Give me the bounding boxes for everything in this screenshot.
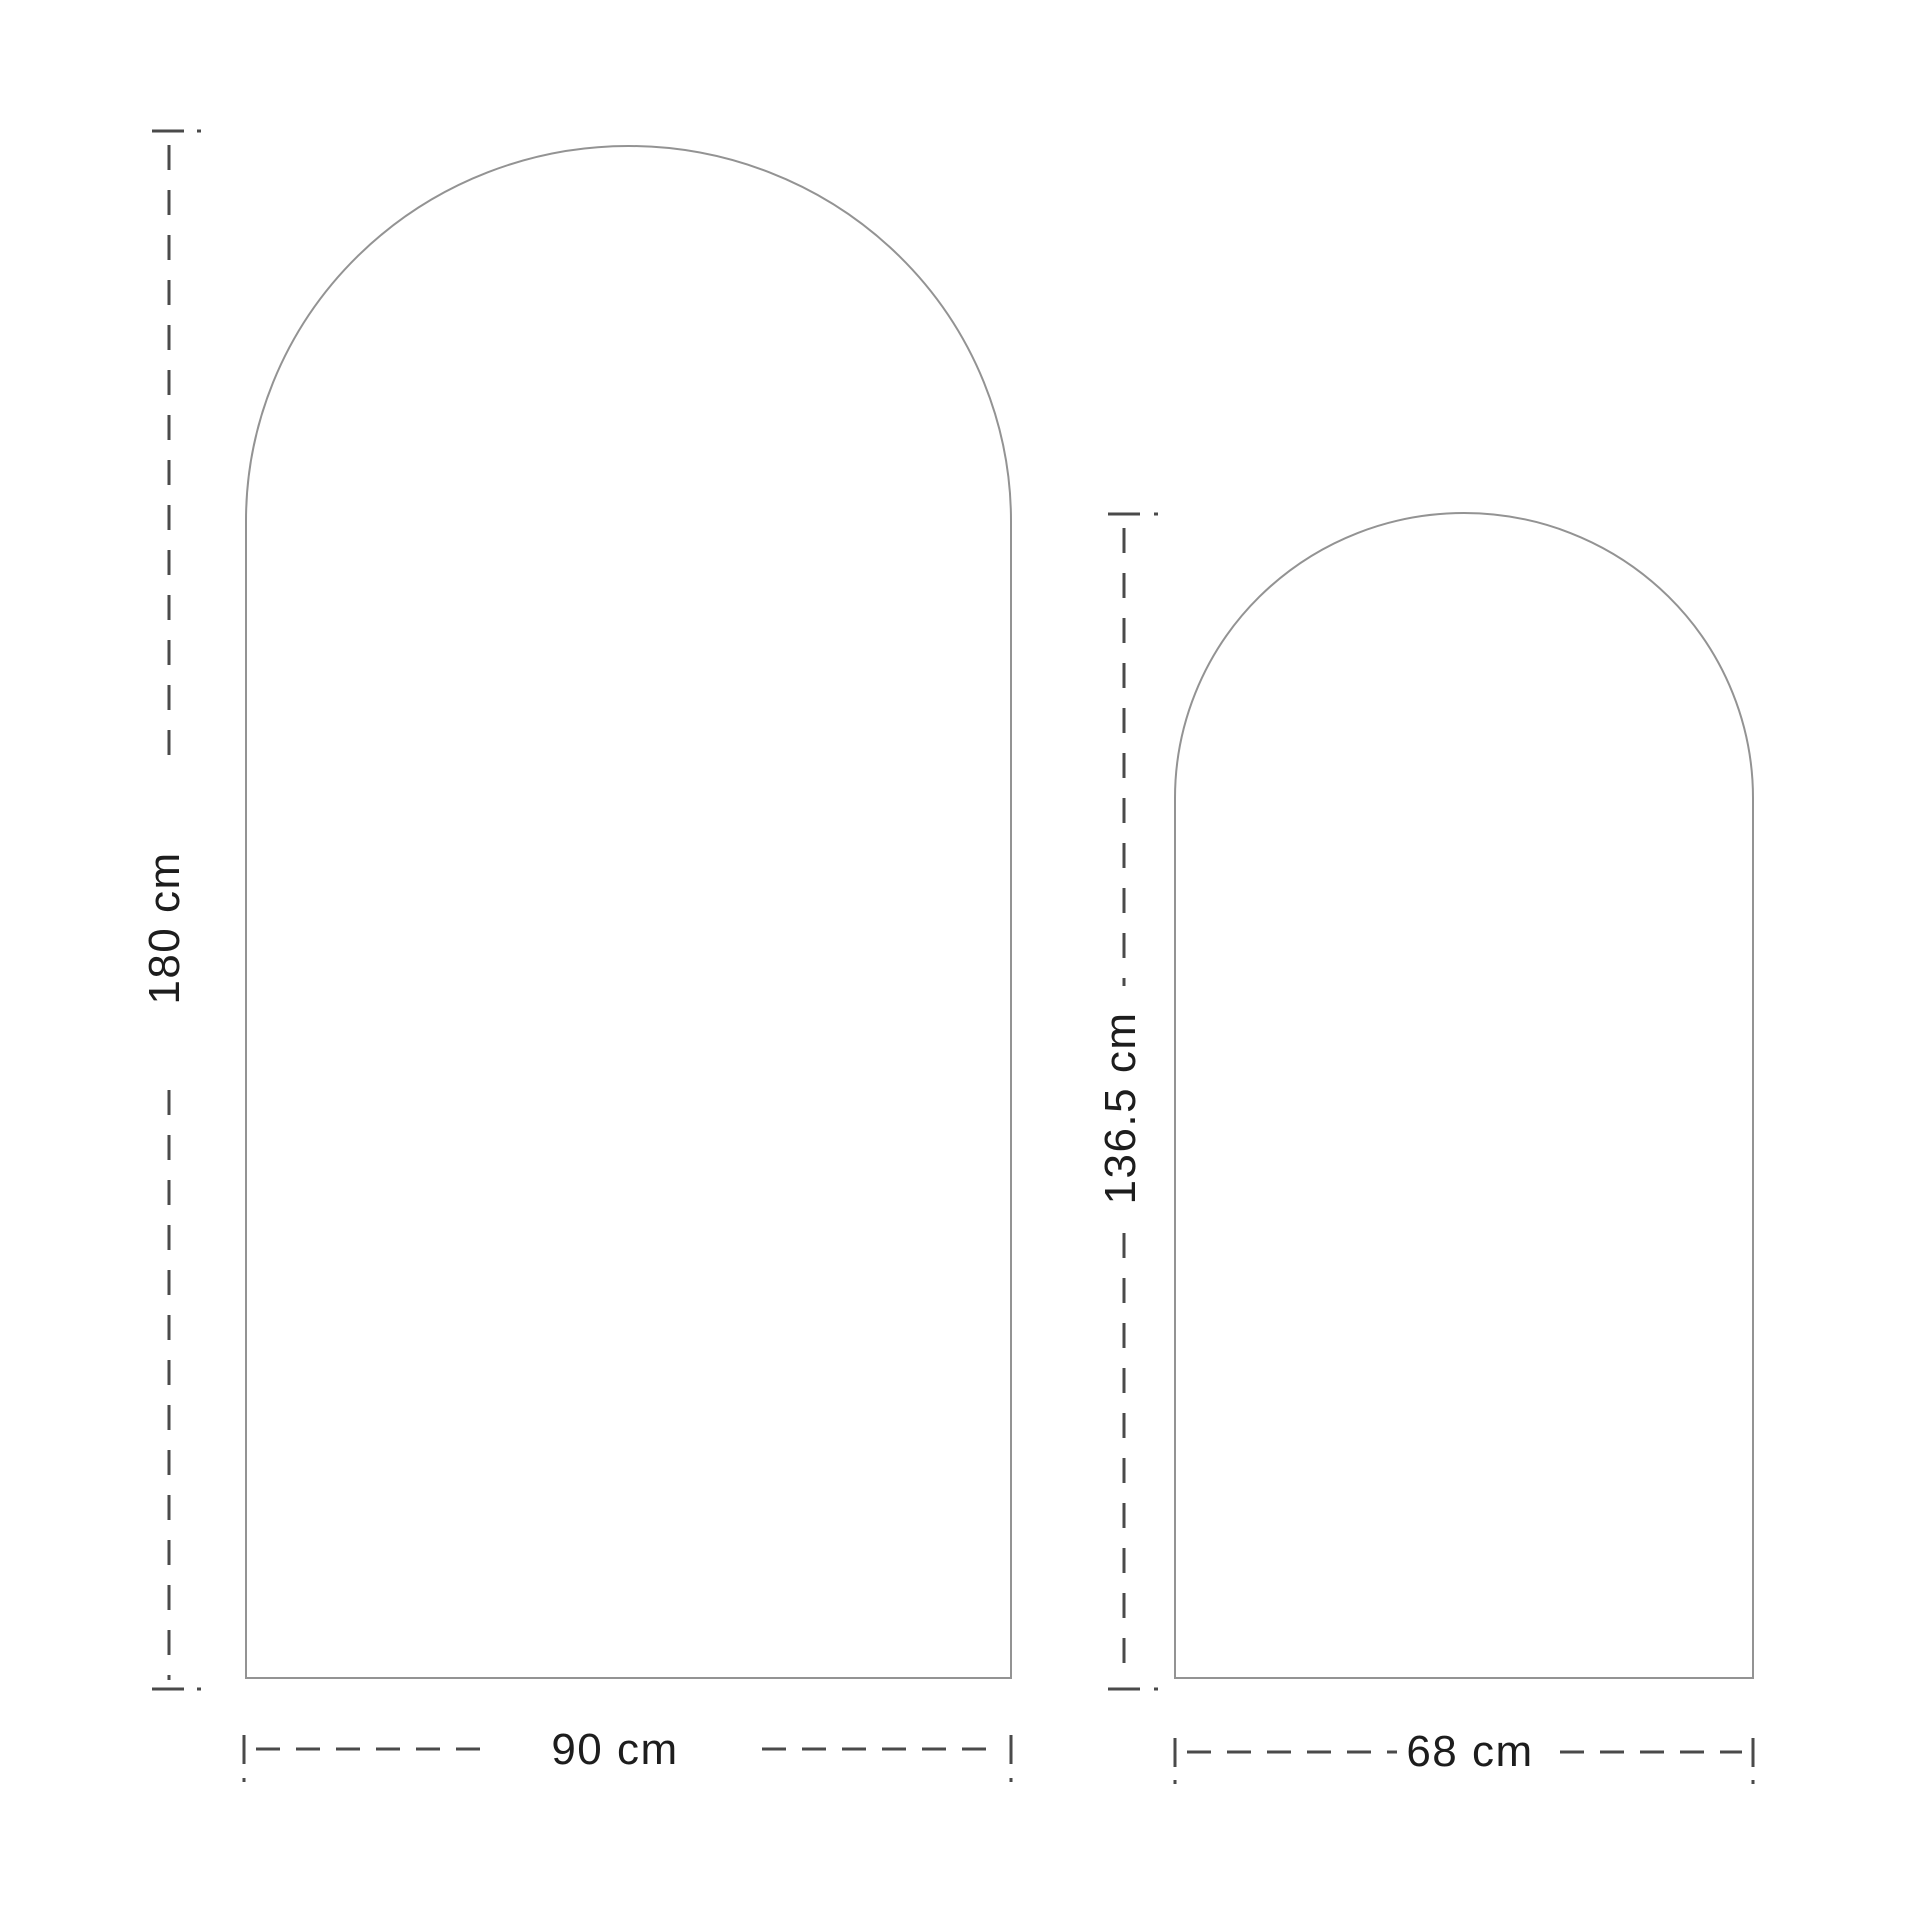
large-arch-outline bbox=[246, 146, 1011, 1678]
large-arch-height-label: 180 cm bbox=[143, 845, 187, 1010]
dimension-diagram: 180 cm 90 cm 136.5 cm 68 cm bbox=[0, 0, 1920, 1920]
large-arch-width-label: 90 cm bbox=[545, 1728, 684, 1772]
diagram-artwork bbox=[0, 0, 1920, 1920]
small-arch-outline bbox=[1175, 513, 1753, 1678]
small-arch-width-label: 68 cm bbox=[1400, 1730, 1539, 1774]
small-arch-height-label: 136.5 cm bbox=[1099, 1006, 1143, 1211]
